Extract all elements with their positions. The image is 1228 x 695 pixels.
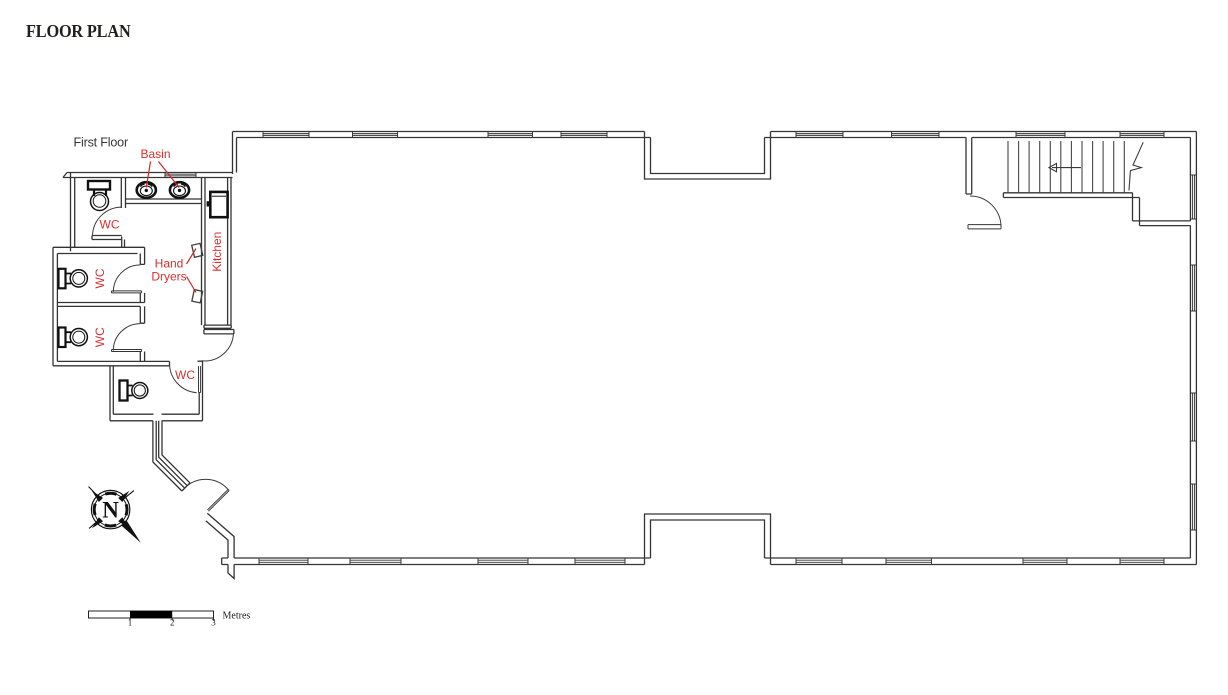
svg-text:WC: WC: [175, 368, 195, 382]
svg-text:Dryers: Dryers: [151, 269, 186, 283]
svg-text:2: 2: [170, 618, 175, 628]
svg-text:3: 3: [211, 618, 216, 628]
svg-text:WC: WC: [100, 217, 120, 231]
svg-text:WC: WC: [93, 268, 107, 288]
svg-text:1: 1: [128, 618, 133, 628]
svg-text:WC: WC: [93, 327, 107, 347]
svg-text:Metres: Metres: [223, 611, 251, 622]
svg-text:Hand: Hand: [155, 256, 184, 270]
svg-text:Kitchen: Kitchen: [210, 232, 224, 272]
svg-text:N: N: [102, 498, 119, 523]
svg-text:First Floor: First Floor: [74, 136, 128, 150]
svg-text:Basin: Basin: [140, 147, 170, 161]
